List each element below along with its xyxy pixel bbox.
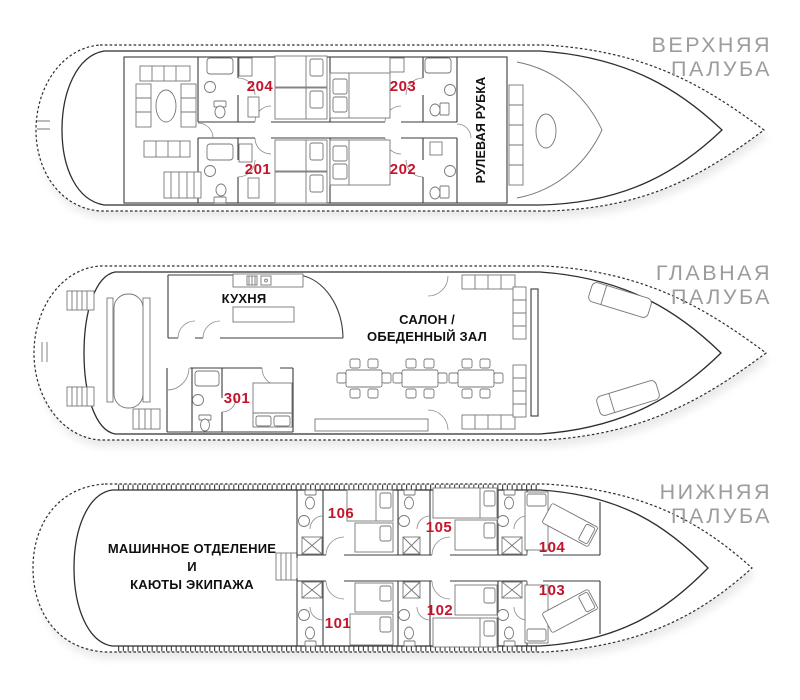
- helm-table: [536, 114, 556, 148]
- main-deck-plan: КУХНЯ 301 САЛОН / ОБЕДЕННЫЙ ЗАЛ: [0, 248, 800, 465]
- kitchen-label: КУХНЯ: [222, 291, 267, 306]
- chair: [438, 373, 447, 383]
- rail: [107, 298, 113, 402]
- bed: [455, 585, 497, 615]
- sideboard: [315, 419, 428, 431]
- ladder: [67, 291, 94, 310]
- bed: [350, 614, 393, 645]
- kitchen-sink: [261, 276, 271, 285]
- pillow: [380, 586, 391, 601]
- sink: [498, 516, 509, 527]
- ladder: [133, 409, 160, 429]
- upper-deck-title-line2: ПАЛУБА: [671, 57, 772, 81]
- locker: [302, 582, 322, 598]
- bed: [275, 88, 327, 119]
- bed: [433, 618, 497, 647]
- sink: [445, 85, 456, 96]
- pillow: [484, 491, 495, 506]
- sink: [399, 516, 410, 527]
- cabin-202-number: 202: [390, 161, 417, 178]
- helm-bench: [509, 85, 523, 185]
- cabin-102-number: 102: [427, 602, 454, 619]
- wardrobe: [239, 144, 252, 162]
- wardrobe: [239, 58, 252, 76]
- sink: [205, 82, 216, 93]
- cabinet: [430, 142, 442, 155]
- cabin-101-number: 101: [325, 615, 352, 632]
- kitchen-counter: [233, 274, 303, 287]
- engine-room-label-line2: И: [187, 559, 197, 574]
- bow-bench: [513, 365, 526, 417]
- sofa: [181, 84, 196, 127]
- bed: [433, 488, 497, 518]
- pillow: [484, 588, 495, 603]
- table: [402, 370, 438, 387]
- pillow: [333, 164, 347, 179]
- cabin-204-number: 204: [247, 78, 274, 95]
- ladder: [67, 387, 94, 406]
- cabin-201-number: 201: [245, 161, 272, 178]
- engine-room-label-line3: КАЮТЫ ЭКИПАЖА: [130, 577, 254, 592]
- rail: [143, 298, 150, 402]
- stairs: [164, 172, 201, 198]
- sink: [399, 610, 410, 621]
- chair: [393, 373, 402, 383]
- sink: [498, 610, 509, 621]
- bed: [355, 583, 393, 612]
- chair: [368, 359, 378, 368]
- chair: [462, 359, 472, 368]
- pillow: [380, 617, 391, 632]
- kitchen-island: [233, 307, 294, 322]
- chair: [480, 359, 490, 368]
- cabin-104-number: 104: [539, 539, 566, 556]
- shower: [207, 144, 233, 160]
- stove: [247, 276, 257, 285]
- chair: [382, 373, 391, 383]
- main-deck-title-line2: ПАЛУБА: [671, 285, 772, 309]
- main-deck-title-line1: ГЛАВНАЯ: [656, 261, 772, 285]
- pillow: [310, 175, 323, 192]
- chair: [449, 373, 458, 383]
- wheelhouse-label: РУЛЕВАЯ РУБКА: [474, 77, 488, 184]
- cabin-301-number: 301: [224, 390, 251, 407]
- pillow: [527, 629, 546, 641]
- sink: [205, 166, 216, 177]
- pillow: [484, 523, 495, 538]
- salon-label-line2: ОБЕДЕННЫЙ ЗАЛ: [367, 329, 487, 344]
- sink: [445, 166, 456, 177]
- pillow: [274, 416, 290, 426]
- engine-room-label-line1: МАШИННОЕ ОТДЕЛЕНИЕ: [108, 541, 276, 556]
- chair: [424, 389, 434, 398]
- cabinet: [390, 58, 404, 72]
- pillow: [333, 146, 347, 161]
- pillow: [256, 416, 271, 426]
- table: [346, 370, 382, 387]
- sofa: [136, 84, 151, 127]
- lower-deck-title-line1: НИЖНЯЯ: [660, 480, 772, 504]
- chair: [494, 373, 503, 383]
- coffee-table: [156, 90, 176, 122]
- sofa: [140, 66, 190, 81]
- locker: [302, 537, 322, 554]
- pillow: [333, 79, 347, 94]
- stairs: [276, 553, 297, 580]
- bed: [455, 520, 497, 550]
- chair: [350, 359, 360, 368]
- double-bed: [330, 140, 390, 185]
- locker: [502, 537, 522, 554]
- pillow: [380, 493, 391, 508]
- pillow: [380, 526, 391, 541]
- bed: [275, 172, 327, 203]
- sink: [299, 516, 310, 527]
- toilet: [214, 101, 226, 118]
- bed: [275, 140, 327, 171]
- pillow: [310, 59, 323, 76]
- chair: [368, 389, 378, 398]
- pillow: [333, 97, 347, 112]
- lower-deck-title-line2: ПАЛУБА: [671, 504, 772, 528]
- double-bed: [253, 383, 292, 427]
- bow-bench: [462, 275, 515, 289]
- sink: [299, 610, 310, 621]
- upper-deck-title-line1: ВЕРХНЯЯ: [652, 33, 772, 57]
- cabin-103-number: 103: [539, 582, 566, 599]
- chair: [337, 373, 346, 383]
- salon-label-line1: САЛОН /: [399, 312, 455, 327]
- double-bed: [330, 73, 390, 118]
- liferaft: [114, 294, 143, 408]
- chair: [480, 389, 490, 398]
- cabin-106-number: 106: [328, 505, 355, 522]
- chair: [406, 389, 416, 398]
- pillow: [484, 621, 495, 636]
- locker: [403, 582, 420, 598]
- bed: [275, 56, 327, 87]
- chair: [406, 359, 416, 368]
- cabin-203-number: 203: [390, 78, 417, 95]
- pillow: [310, 143, 323, 160]
- locker: [502, 582, 522, 598]
- table: [458, 370, 494, 387]
- deck-plan-page: { "colors": { "cabin_number": "#C5132B",…: [0, 0, 800, 700]
- shower: [425, 58, 451, 73]
- pillow: [527, 494, 546, 506]
- cabinet: [248, 97, 259, 117]
- cabin-105-number: 105: [426, 519, 453, 536]
- locker: [403, 537, 420, 554]
- cabinet: [248, 178, 259, 198]
- bed: [355, 523, 393, 552]
- bow-bench: [513, 287, 526, 339]
- sofa: [144, 141, 190, 157]
- chair: [350, 389, 360, 398]
- shower: [195, 371, 219, 386]
- bow-bench: [462, 415, 515, 429]
- chair: [462, 389, 472, 398]
- lower-deck-plan: МАШИННОЕ ОТДЕЛЕНИЕ И КАЮТЫ ЭКИПАЖА 106: [0, 472, 800, 687]
- sink: [193, 395, 204, 406]
- shower: [207, 58, 233, 74]
- upper-deck-plan: 204 203 201 202 РУЛЕВАЯ РУБКА ВЕРХНЯЯ ПА…: [0, 10, 800, 245]
- chair: [424, 359, 434, 368]
- pillow: [310, 91, 323, 108]
